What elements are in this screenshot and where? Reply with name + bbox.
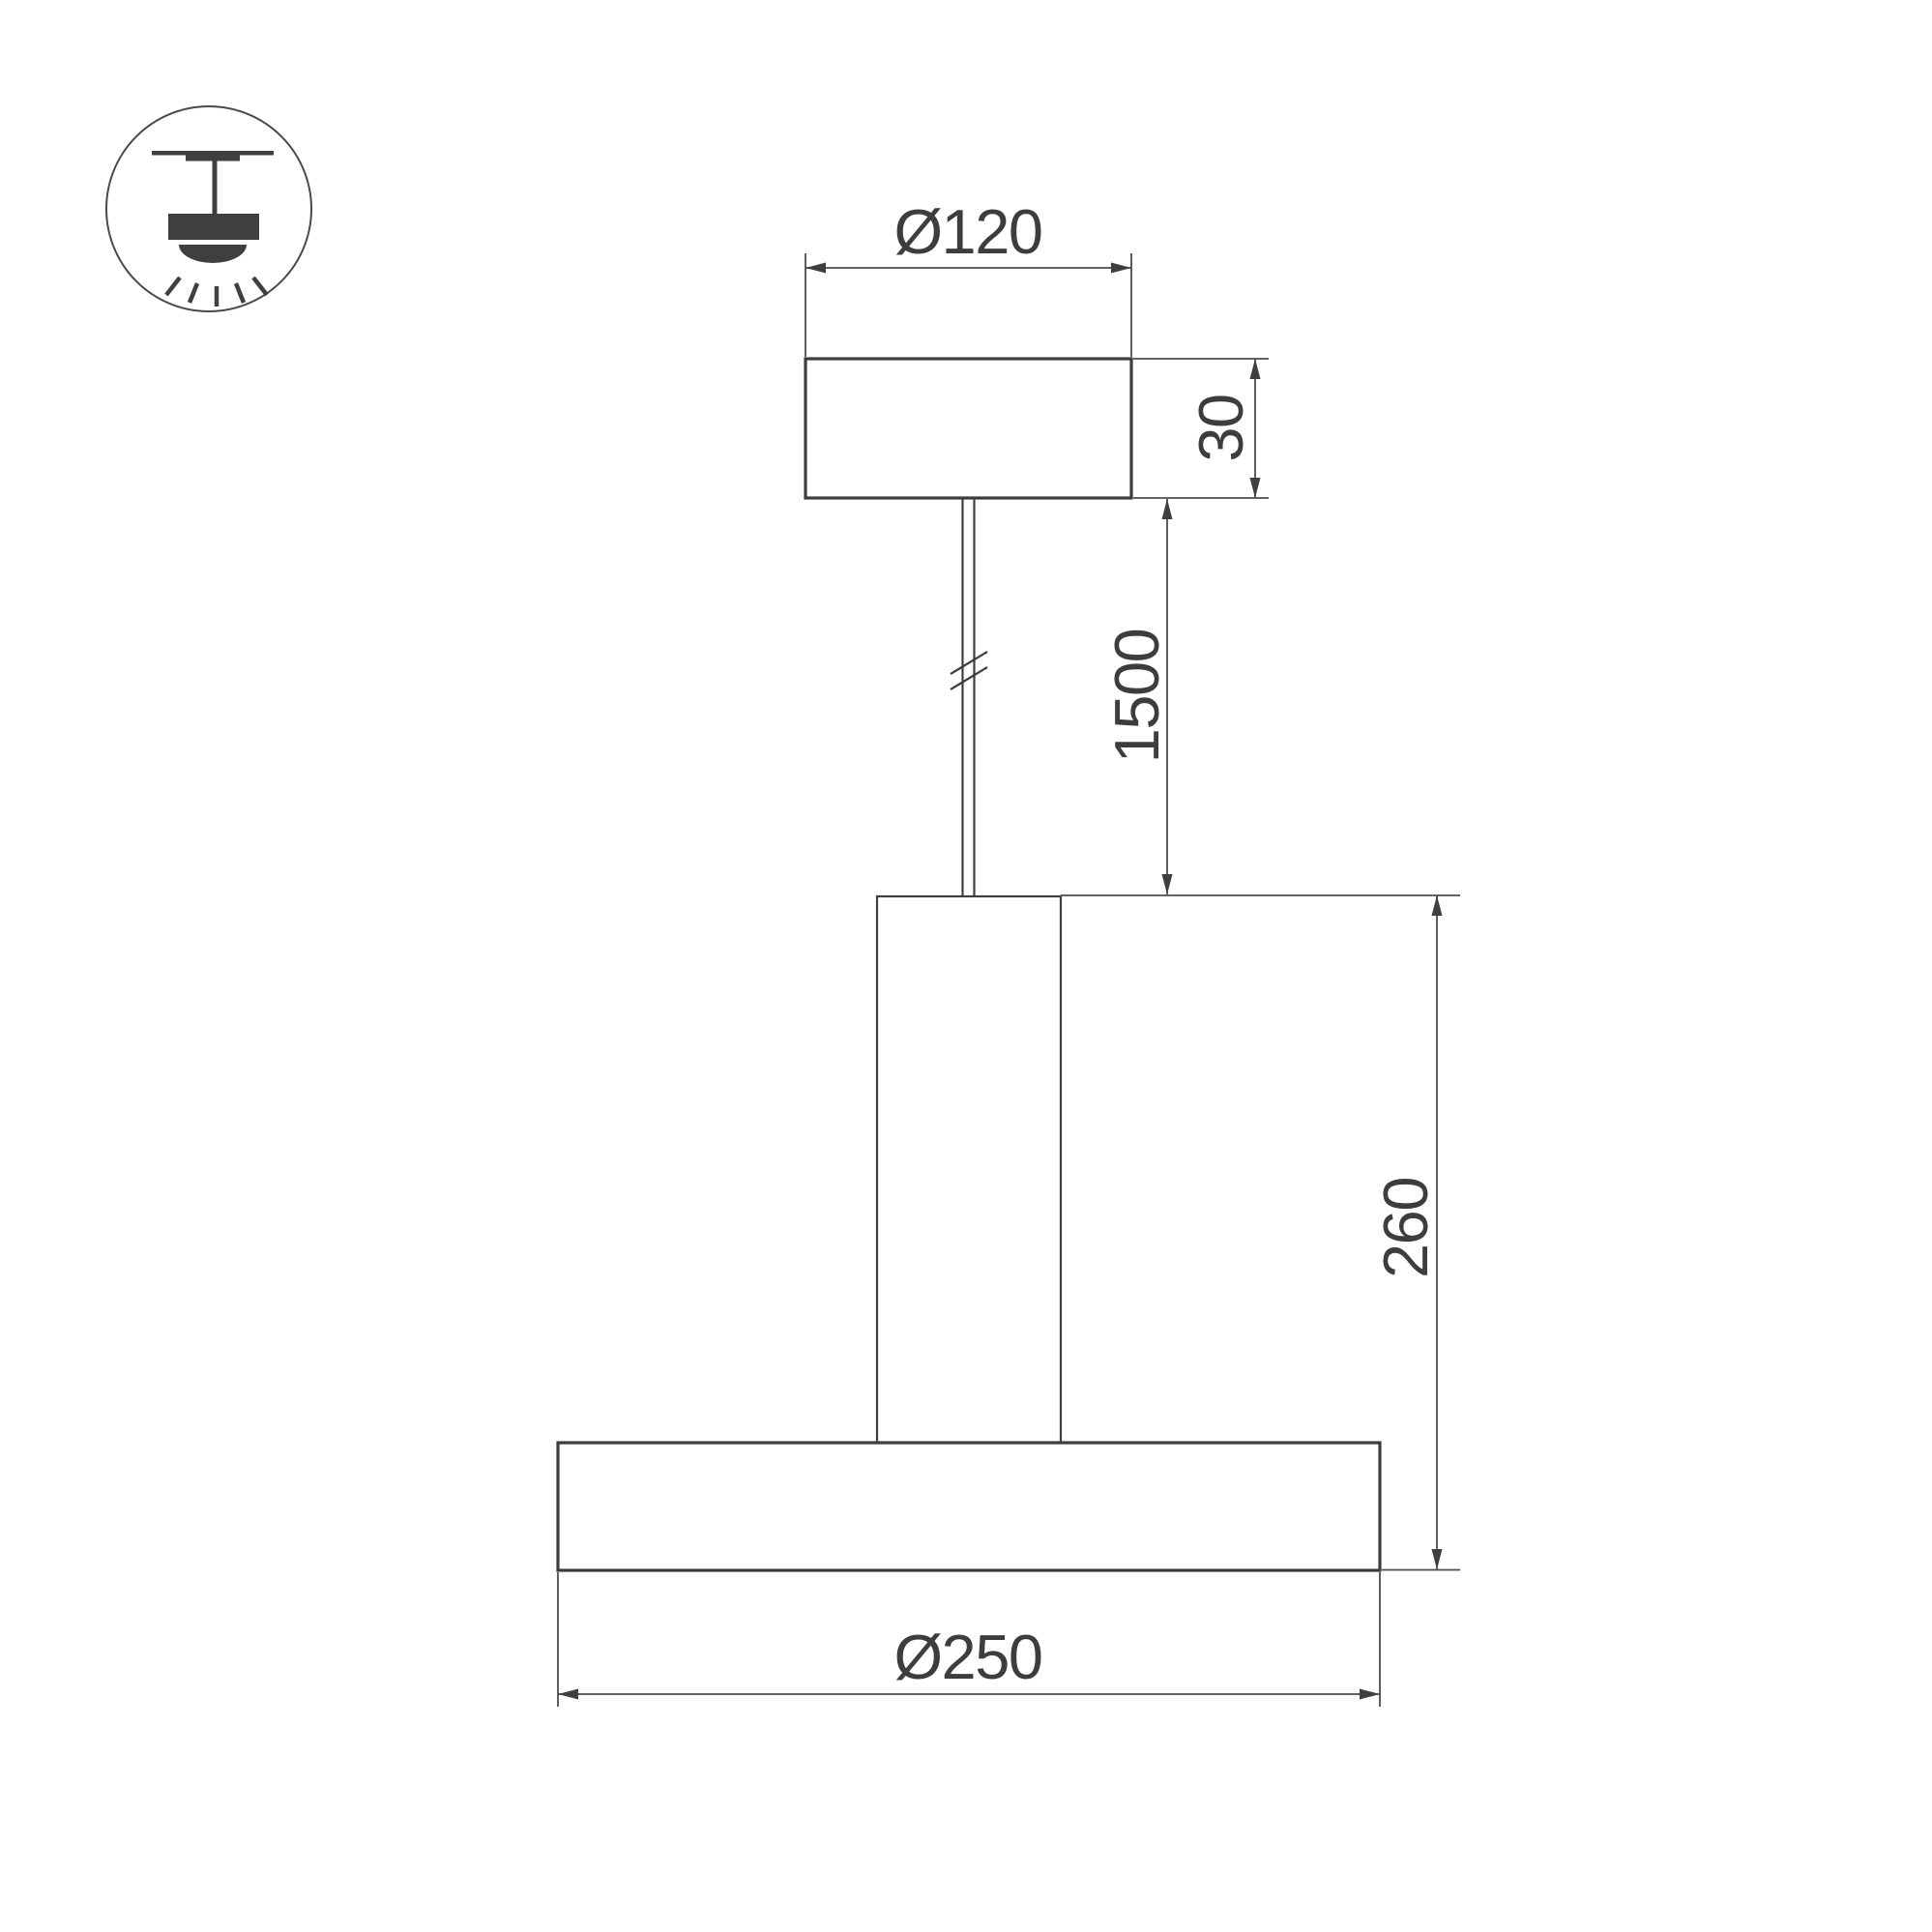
- icon-lamp-dome: [179, 245, 247, 263]
- arrowhead-left: [805, 263, 826, 274]
- dim-canopy-height: 30: [1133, 359, 1269, 498]
- icon-mount-plate: [186, 156, 240, 161]
- dim-fixture-height: 260: [1370, 895, 1460, 1570]
- arrowhead-bottom: [1162, 874, 1173, 894]
- canopy-outline: [805, 359, 1131, 498]
- technical-drawing-svg: Ø120 30 1500 260: [0, 0, 1932, 1932]
- light-ray: [166, 278, 180, 295]
- icon-circle-border: [106, 106, 311, 311]
- dim-canopy-diameter: Ø120: [805, 196, 1131, 357]
- dim-label-shade-diameter: Ø250: [893, 1622, 1041, 1692]
- dim-label-canopy-diameter: Ø120: [893, 196, 1041, 267]
- icon-ceiling-line: [152, 151, 274, 156]
- lamp-outline: [558, 359, 1380, 1570]
- dim-shade-diameter: Ø250: [558, 1572, 1380, 1707]
- arrowhead-bottom: [1432, 1549, 1443, 1569]
- light-ray: [236, 283, 244, 303]
- light-ray: [253, 278, 267, 295]
- arrowhead-top: [1162, 499, 1173, 519]
- dim-label-fixture-height: 260: [1370, 1178, 1441, 1278]
- dim-suspension-length: 1500: [1101, 499, 1173, 894]
- arrowhead-right: [1111, 263, 1131, 274]
- suspension-wire: [963, 498, 975, 896]
- arrowhead-top: [1432, 895, 1443, 916]
- arrowhead-top: [1250, 359, 1261, 379]
- lamp-body-outline: [877, 896, 1061, 1443]
- pendant-lamp-ceiling-mount-icon: [106, 106, 311, 311]
- icon-lamp-body: [168, 214, 259, 240]
- drawing-canvas: Ø120 30 1500 260: [0, 0, 1932, 1932]
- icon-stem: [213, 161, 218, 215]
- dim-label-suspension-length: 1500: [1101, 629, 1172, 764]
- light-ray: [190, 283, 197, 303]
- arrowhead-right: [1360, 1689, 1380, 1700]
- arrowhead-bottom: [1250, 478, 1261, 498]
- lamp-shade-outline: [558, 1443, 1380, 1570]
- wire-break-symbol: [951, 652, 987, 689]
- dim-label-canopy-height: 30: [1186, 395, 1256, 461]
- arrowhead-left: [558, 1689, 578, 1700]
